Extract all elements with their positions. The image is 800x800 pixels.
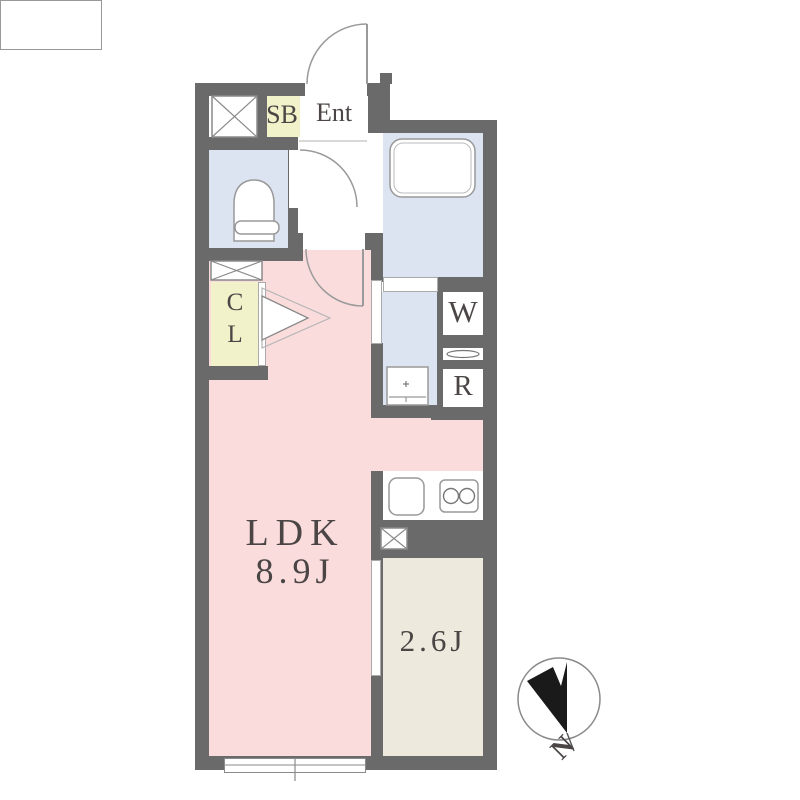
bedroom-size-label: 2.6J: [383, 625, 483, 658]
toilet-icon: [234, 180, 279, 241]
closet-door-icon: [262, 288, 330, 348]
floor-plan: SB Ent C L LDK 8.9J 2.6J W R N: [0, 0, 800, 800]
crossbox-above-closet-icon: [211, 261, 262, 280]
north-arrow-icon: [527, 662, 567, 733]
toilet-door-arc: [300, 150, 357, 207]
washer-label: W: [443, 296, 483, 329]
closet-label-top: C: [214, 290, 256, 316]
fixtures-layer: [0, 0, 800, 800]
ldk-name-label: LDK: [228, 514, 362, 554]
crossbox-kitchen-icon: [381, 528, 407, 549]
washbasin-icon: [387, 367, 428, 405]
ldk-size-label: 8.9J: [228, 553, 362, 591]
entrance-door-arc: [307, 24, 367, 84]
kitchen-sink-icon: [389, 478, 424, 515]
stove-icon: [440, 480, 478, 512]
shoe-box-label: SB: [258, 101, 306, 128]
shelf-icon: [447, 351, 479, 358]
crossbox-top-left-icon: [212, 96, 257, 137]
bathtub-icon: [390, 139, 475, 197]
closet-label-bottom: L: [214, 322, 256, 348]
window-lines: [225, 759, 365, 781]
refrigerator-label: R: [443, 371, 483, 401]
entrance-label: Ent: [300, 99, 368, 126]
hall-door-arc: [306, 249, 363, 306]
